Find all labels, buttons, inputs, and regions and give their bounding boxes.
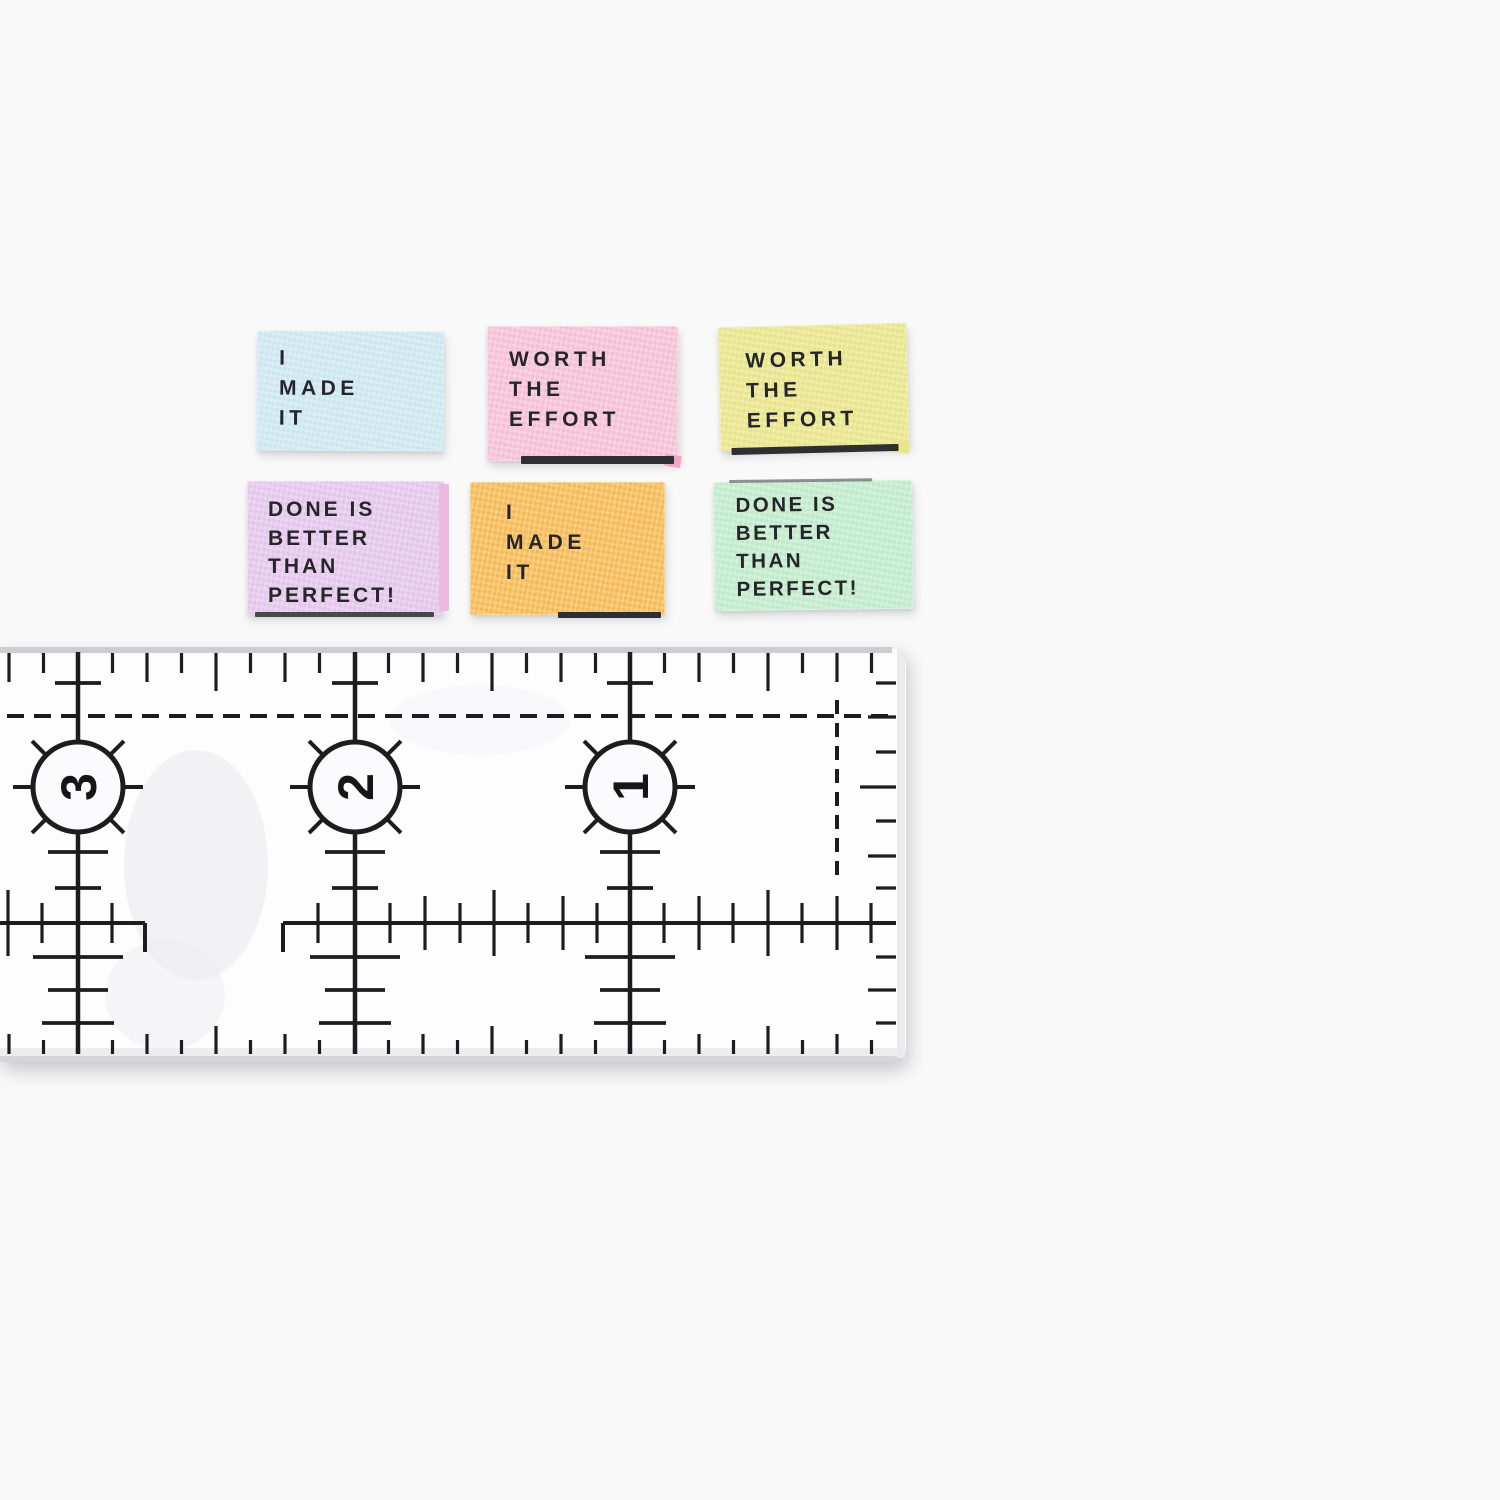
ruler-top-edge: [0, 647, 892, 653]
ruler-right-bevel: [897, 650, 905, 1058]
ruler-number: 3: [51, 773, 107, 801]
fabric-label-done-is-better-lavender: DONE IS BETTER THAN PERFECT!: [247, 481, 444, 615]
fabric-label-i-made-it-orange: I MADE IT: [470, 482, 665, 615]
ruler-number: 2: [328, 773, 384, 801]
label-text-line: BETTER: [736, 518, 913, 548]
label-text-line: WORTH: [745, 343, 908, 377]
label-text-line: THE: [509, 375, 678, 405]
label-text-line: I: [506, 498, 665, 528]
label-text-line: PERFECT!: [268, 582, 444, 611]
label-text-line: EFFORT: [509, 405, 678, 435]
ruler-translucency-blotch: [390, 685, 570, 755]
product-photo: I MADE IT WORTH THE EFFORT WORTH THE EFF…: [0, 0, 1500, 1500]
label-text-line: IT: [506, 558, 665, 588]
quilting-ruler: 3 2 1: [0, 645, 915, 1077]
label-text: I MADE IT: [257, 331, 445, 452]
label-text-line: MADE: [279, 374, 444, 405]
ruler-number: 1: [603, 773, 659, 801]
label-text-line: WORTH: [509, 345, 678, 375]
label-text-line: MADE: [506, 528, 665, 558]
ruler-bottom-edge: [0, 1056, 902, 1062]
ruler-inch-marker-2: 2: [310, 742, 400, 832]
label-text-line: DONE IS: [735, 490, 912, 520]
label-text: DONE IS BETTER THAN PERFECT!: [247, 481, 444, 615]
label-text: WORTH THE EFFORT: [487, 326, 678, 461]
ruler-inch-marker-3: 3: [33, 742, 123, 832]
label-text-line: DONE IS: [268, 496, 444, 525]
label-text-line: BETTER: [268, 525, 444, 554]
fabric-label-done-is-better-mint: DONE IS BETTER THAN PERFECT!: [713, 480, 914, 611]
label-text-line: THAN: [268, 553, 444, 582]
label-text-line: THE: [746, 373, 909, 407]
label-text-line: EFFORT: [746, 403, 909, 437]
label-text-line: I: [279, 344, 444, 375]
label-text: I MADE IT: [470, 482, 665, 615]
label-text-line: THAN: [736, 546, 913, 576]
ruler-inch-marker-1: 1: [585, 742, 675, 832]
fabric-label-worth-the-effort-pink: WORTH THE EFFORT: [487, 326, 678, 461]
fabric-label-worth-the-effort-yellow: WORTH THE EFFORT: [718, 323, 910, 452]
label-text-line: IT: [279, 404, 444, 435]
fabric-label-i-made-it-blue: I MADE IT: [257, 331, 445, 452]
label-text: DONE IS BETTER THAN PERFECT!: [713, 480, 914, 611]
label-text-line: PERFECT!: [736, 574, 913, 604]
label-text: WORTH THE EFFORT: [718, 323, 910, 452]
